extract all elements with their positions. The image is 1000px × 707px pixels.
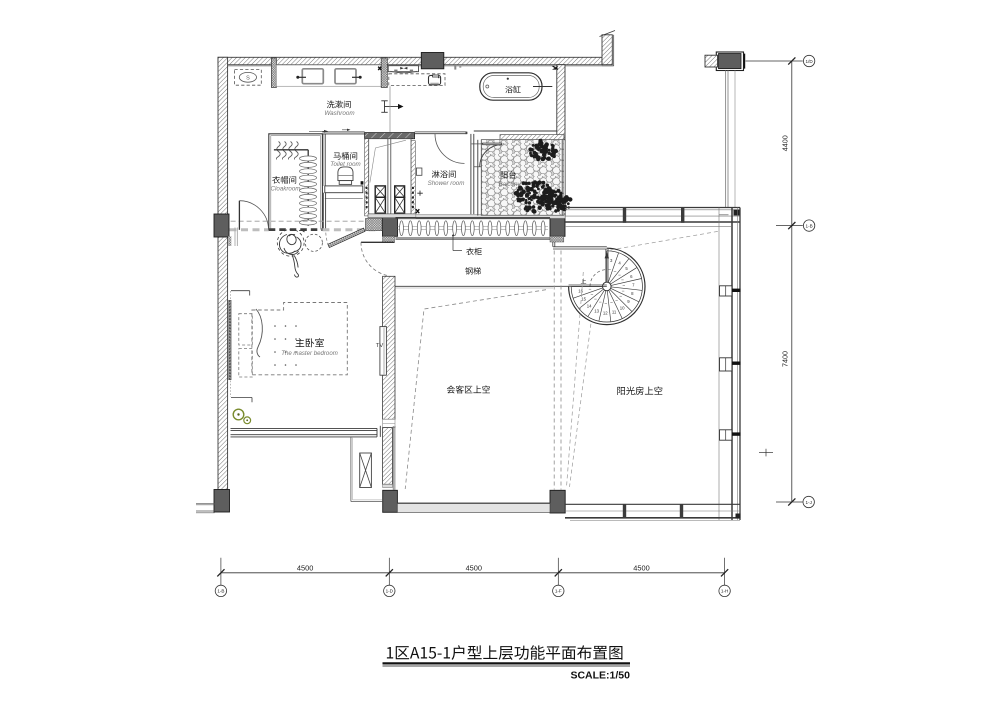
svg-text:SCALE:1/50: SCALE:1/50 [570,670,630,682]
svg-text:1/D: 1/D [806,59,814,64]
svg-text:4500: 4500 [633,563,649,572]
svg-text:Shower room: Shower room [428,180,465,187]
svg-text:Washroom: Washroom [324,110,354,117]
svg-text:15: 15 [581,297,586,302]
svg-text:4500: 4500 [297,563,313,572]
svg-text:1-H: 1-H [721,589,728,594]
svg-text:Toilet room: Toilet room [330,161,360,168]
svg-text:11: 11 [612,309,617,314]
svg-text:1-J: 1-J [806,500,812,505]
svg-text:1-F: 1-F [555,589,562,594]
svg-text:16: 16 [578,288,583,293]
svg-text:14: 14 [587,304,592,309]
svg-text:10: 10 [620,306,625,311]
svg-text:The master bedroom: The master bedroom [281,350,338,357]
svg-text:Cloakroom: Cloakroom [271,186,301,193]
svg-text:Balcony: Balcony [498,181,521,188]
svg-text:1-B: 1-B [217,589,224,594]
svg-text:1-B: 1-B [806,223,813,228]
svg-text:4400: 4400 [781,135,790,151]
svg-text:4500: 4500 [466,563,482,572]
svg-text:7400: 7400 [781,351,790,367]
svg-text:1-D: 1-D [386,589,394,594]
svg-text:S: S [246,76,250,82]
svg-text:12: 12 [603,310,608,315]
svg-text:TV: TV [376,343,384,349]
svg-text:13: 13 [594,308,599,313]
